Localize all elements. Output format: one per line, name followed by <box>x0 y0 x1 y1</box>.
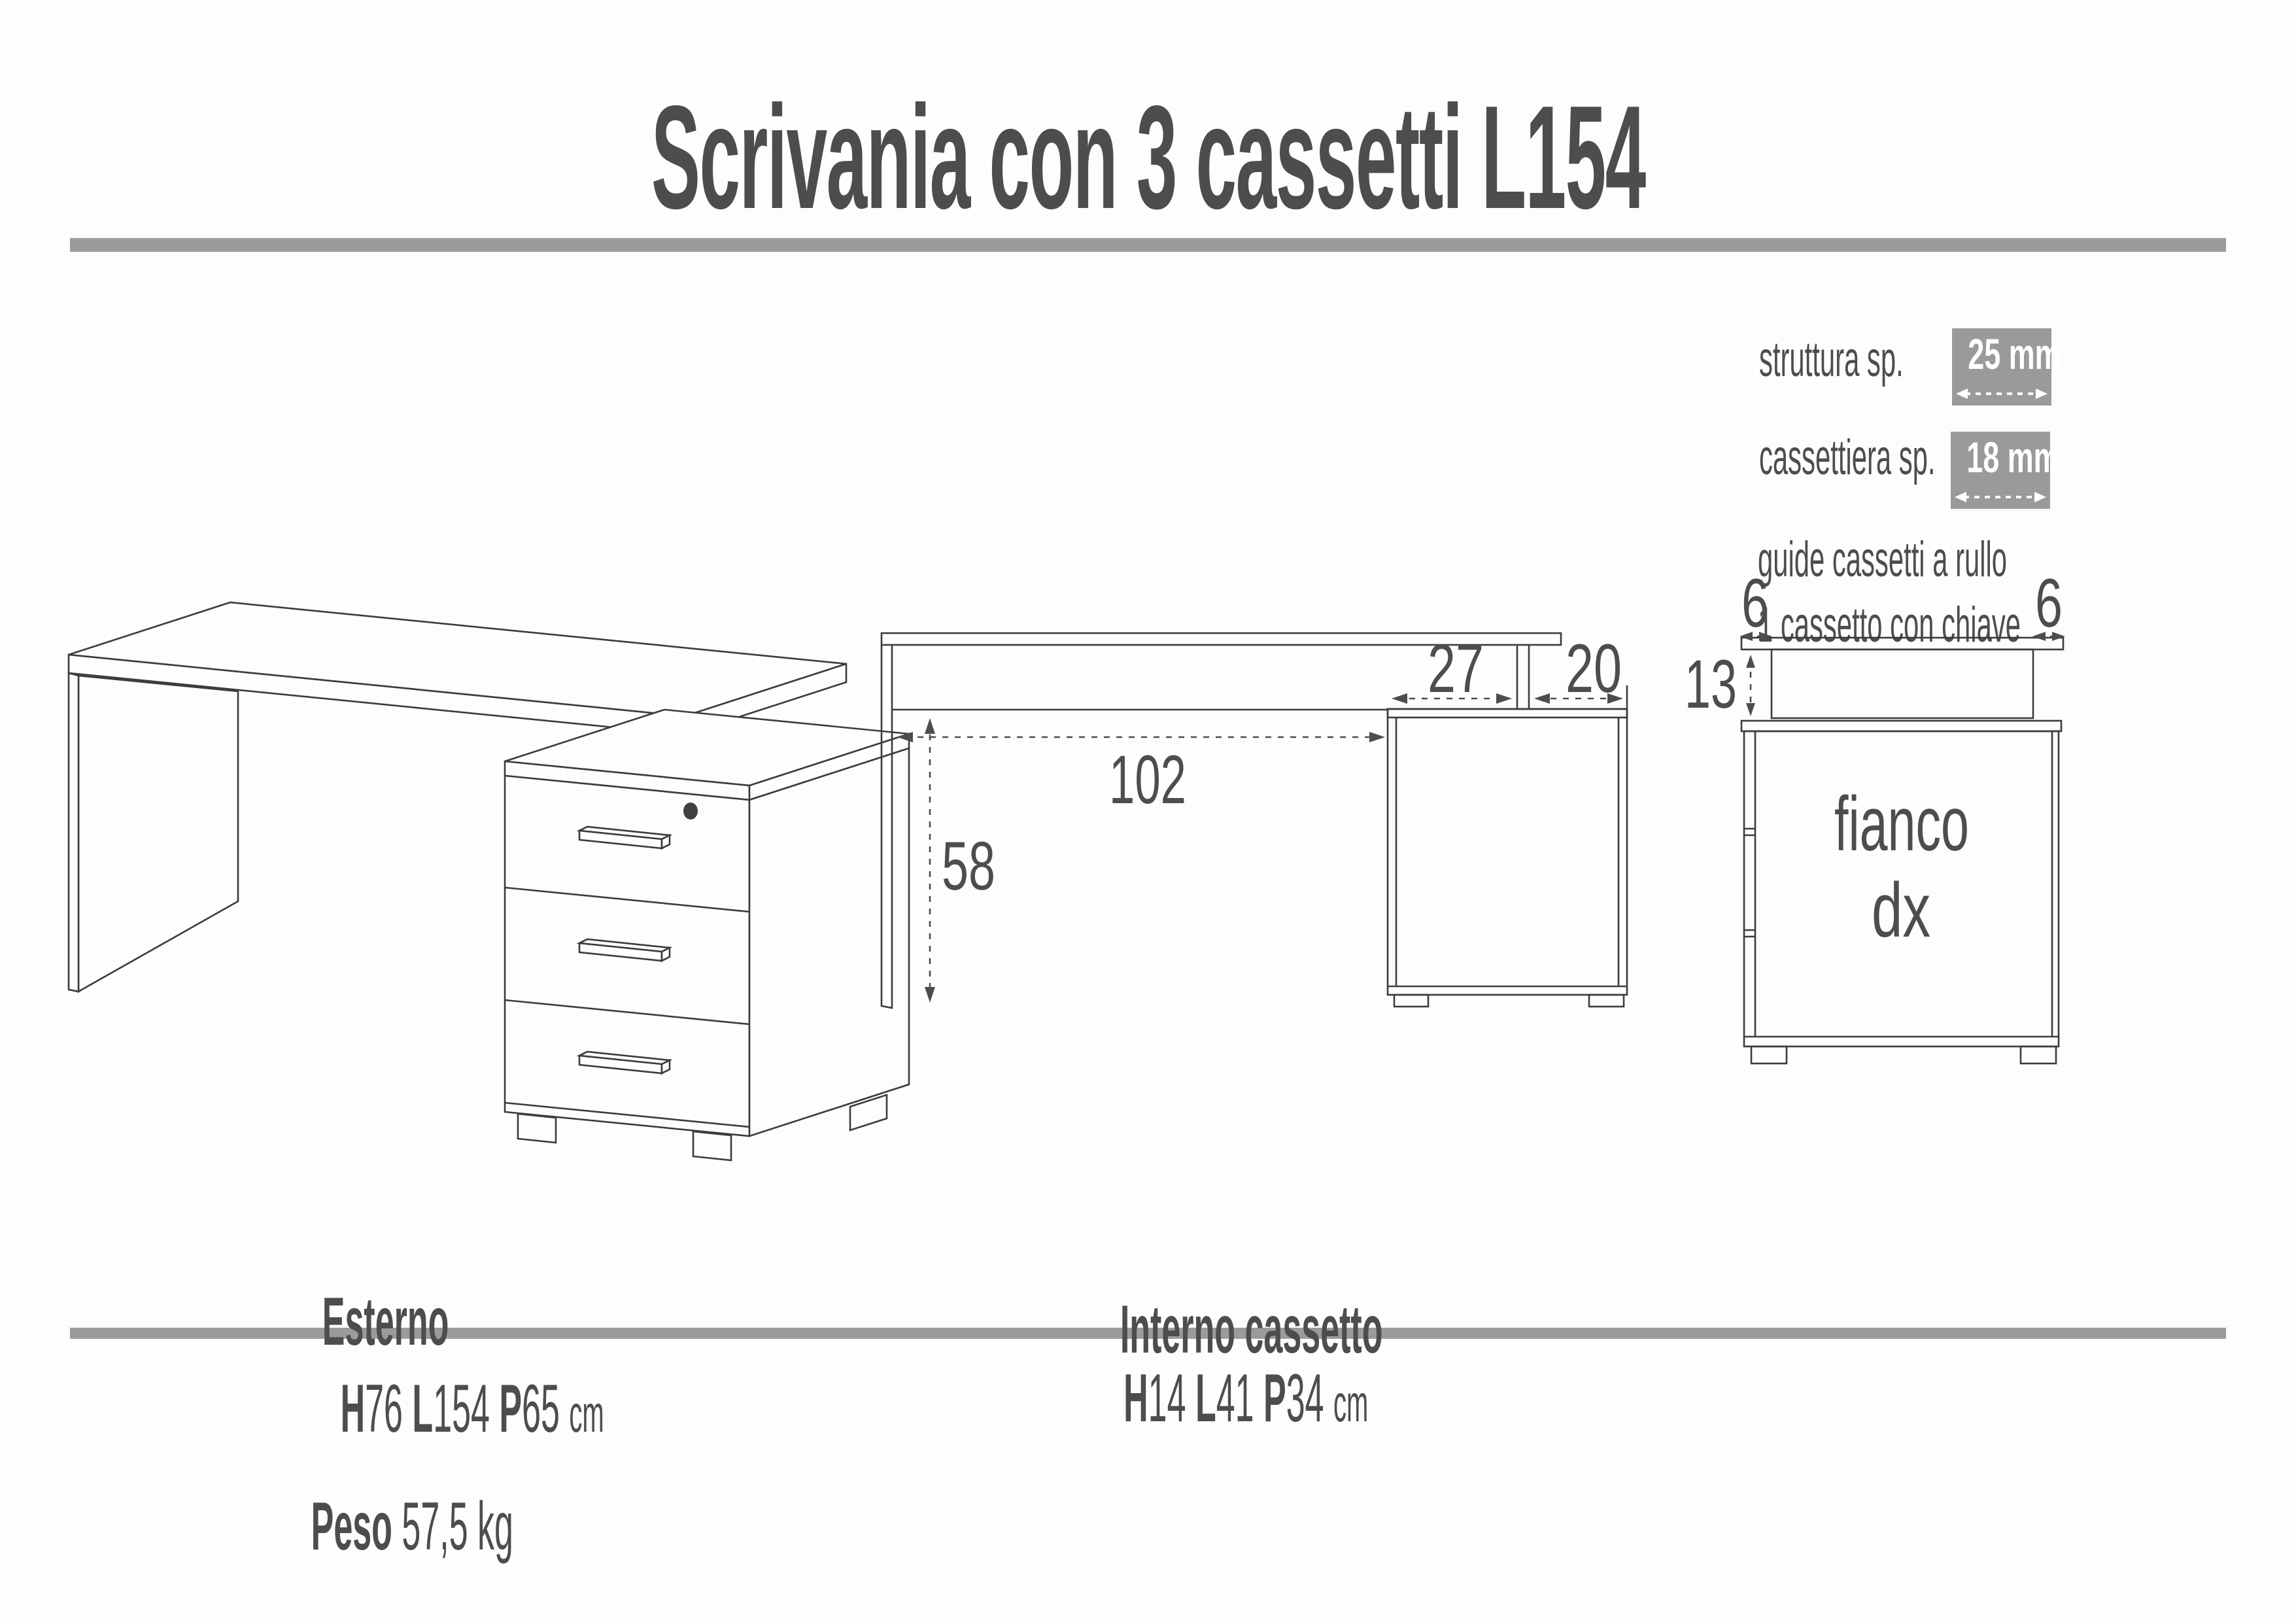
lock-icon <box>683 803 698 820</box>
dim-overhang-left: 6 <box>1741 565 1769 642</box>
drawer-dims-title: Interno cassetto <box>989 1296 1316 1364</box>
dim-clearance-height: 58 <box>942 828 995 905</box>
spec-sheet: Scrivania con 3 cassetti L154 struttura … <box>0 0 2296 1624</box>
dim-top-left: 27 <box>1428 631 1484 707</box>
side-view: 6 6 13 fianco dx <box>1685 565 2065 1063</box>
foot <box>2021 1046 2056 1063</box>
perspective-view <box>69 602 909 1160</box>
external-dims-title: Esterno <box>222 1288 549 1356</box>
foot <box>693 1132 731 1160</box>
front-view: 102 58 27 20 <box>882 631 1627 1008</box>
foot <box>518 1114 556 1143</box>
weight-row: Peso 57,5 kg <box>210 1493 589 1561</box>
foot <box>1751 1046 1787 1063</box>
drawer-dims-values: H14 L41 P34 cm <box>1001 1364 1328 1438</box>
dim-overhang-right: 6 <box>2035 565 2063 642</box>
dim-riser-height: 13 <box>1685 646 1737 723</box>
side-panel-label-line1: fianco <box>1834 781 1969 867</box>
dim-knee-width: 102 <box>1109 742 1186 818</box>
foot <box>1589 995 1624 1007</box>
foot <box>1394 995 1428 1007</box>
side-panel-label-line2: dx <box>1872 867 1930 954</box>
dim-top-right: 20 <box>1566 631 1622 707</box>
external-dims-values: H76 L154 P65 cm <box>209 1375 588 1448</box>
